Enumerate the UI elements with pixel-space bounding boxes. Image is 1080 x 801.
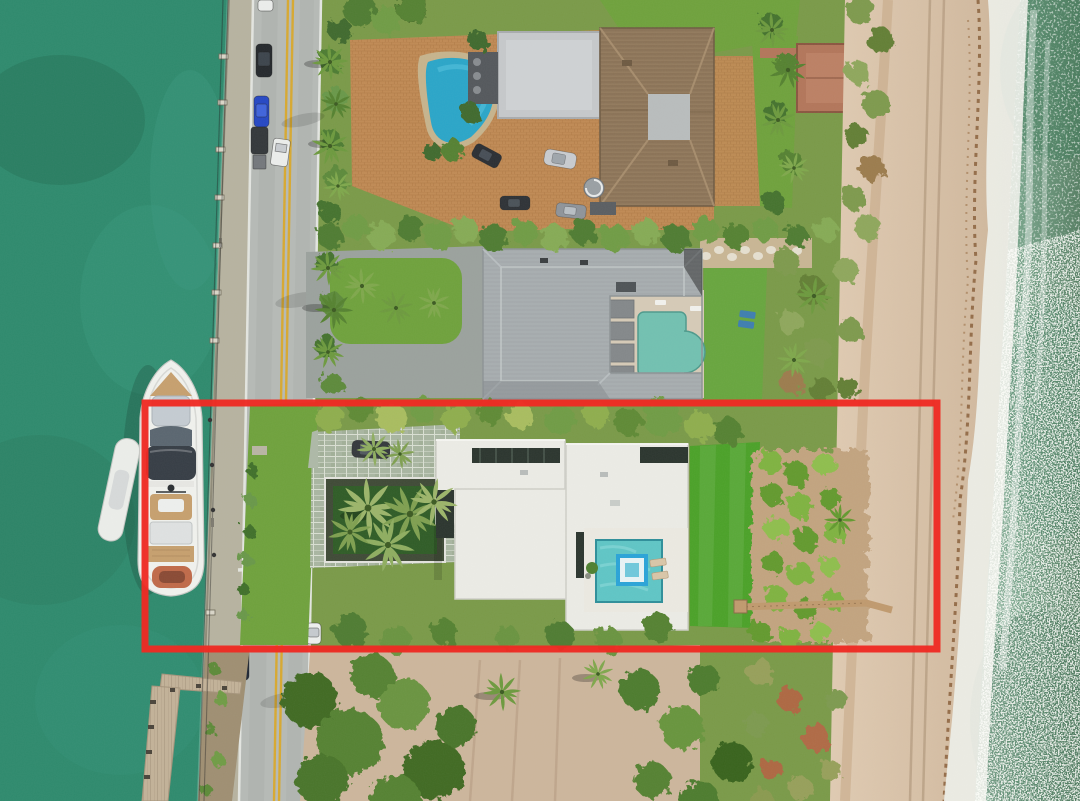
aerial-photo bbox=[0, 0, 1080, 801]
aerial-photo-canvas bbox=[0, 0, 1080, 801]
